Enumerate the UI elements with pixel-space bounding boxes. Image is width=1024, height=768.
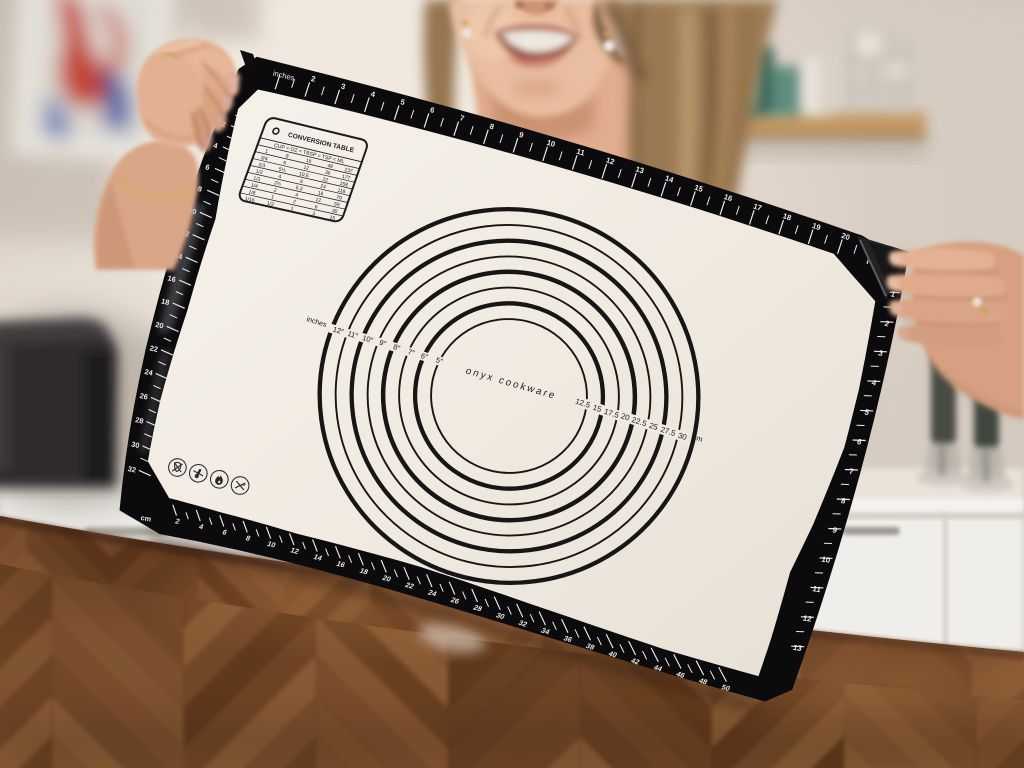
svg-text:cm: cm [140,513,152,524]
